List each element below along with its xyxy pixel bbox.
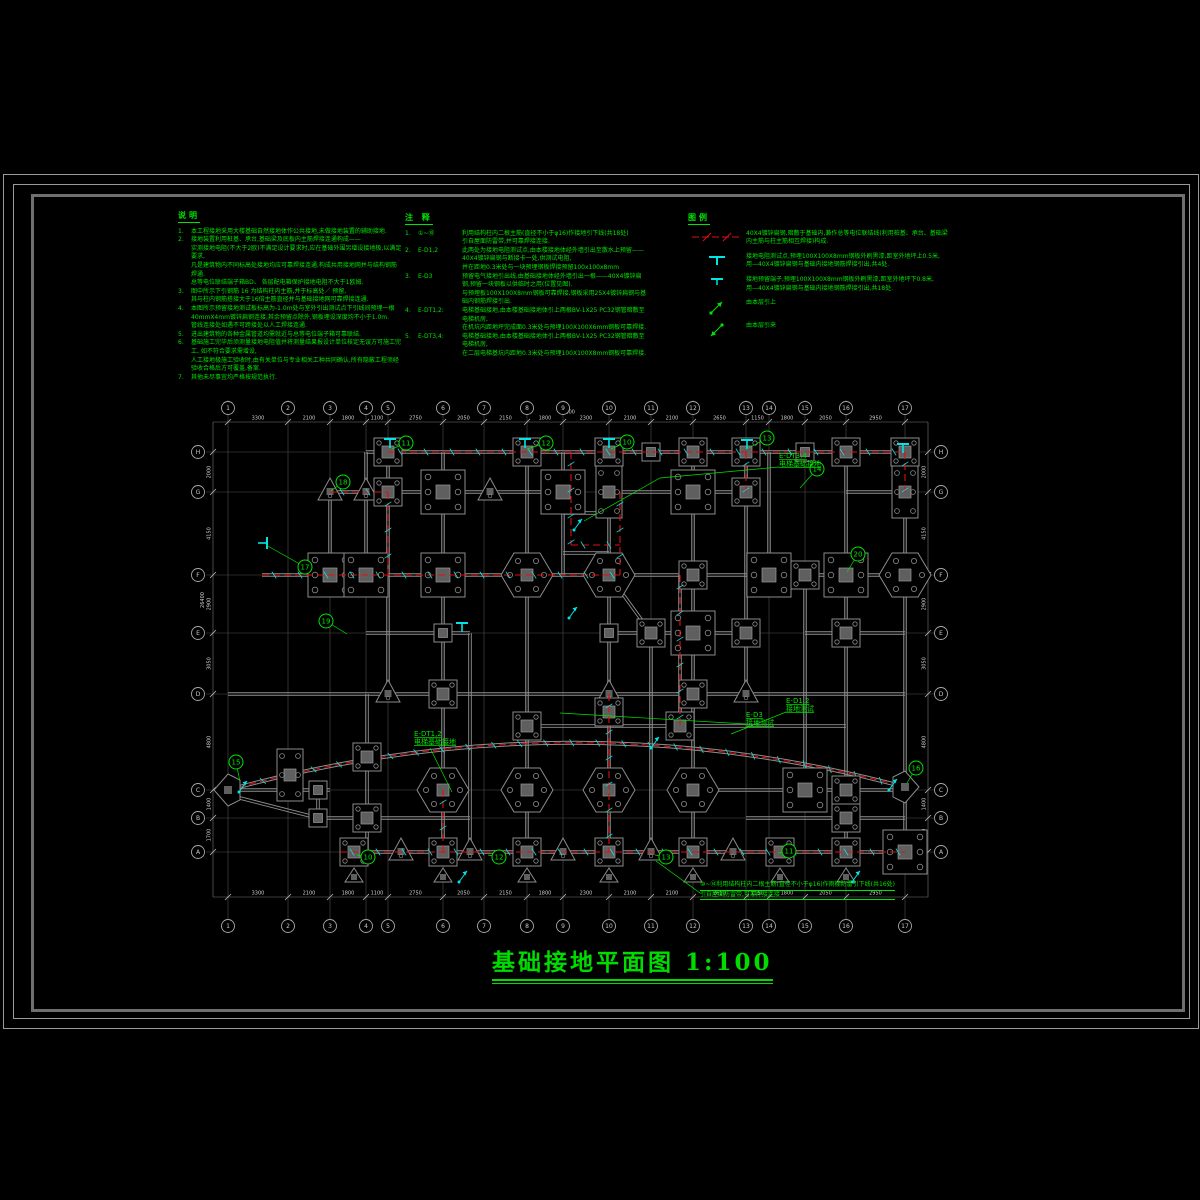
svg-text:15: 15 <box>232 758 241 766</box>
pile-cap <box>783 768 827 812</box>
svg-text:4: 4 <box>364 405 368 412</box>
svg-text:10: 10 <box>364 853 373 861</box>
svg-text:F: F <box>196 572 200 579</box>
svg-text:11: 11 <box>647 405 655 412</box>
pile-cap <box>879 553 931 597</box>
test-point-mark <box>456 623 468 632</box>
pile-cap <box>421 470 465 514</box>
test-point-symbol <box>691 254 743 266</box>
axis-bubble: 3 <box>324 402 337 415</box>
axis-bubble: 6 <box>437 920 450 933</box>
pile-cap <box>513 712 541 740</box>
pile-cap <box>637 619 665 647</box>
svg-text:B: B <box>939 815 943 822</box>
svg-text:B: B <box>196 815 200 822</box>
title-scale: 1:100 <box>685 949 773 976</box>
axis-bubble: 12 <box>687 920 700 933</box>
svg-text:2300: 2300 <box>580 891 593 897</box>
svg-text:C: C <box>939 787 943 794</box>
pile-cap <box>734 680 758 702</box>
test-point-icon <box>688 254 746 266</box>
drawing-title: 基础接地平面图 1:100 <box>492 943 773 984</box>
axis-bubble: G <box>192 486 205 499</box>
note-item: 3.图中所示下引钢筋 16 为结构柱内主筋,并于标高处／ 预留,其与柱内钢筋搭接… <box>178 288 402 305</box>
svg-text:2050: 2050 <box>457 416 470 422</box>
svg-text:1: 1 <box>226 923 230 930</box>
legend-row: 40X4镀锌扁钢,暗敷于基础内,兼作总等电位联结线(利用桩基、承台、基础梁内主筋… <box>688 230 952 247</box>
pile-cap <box>353 743 381 771</box>
item-text: 利用结构柱内二根主筋(直径不小于φ16)作接地引下线(共18处)引自屋面防雷带,… <box>462 230 647 247</box>
svg-text:1800: 1800 <box>342 416 355 422</box>
svg-text:E: E <box>939 630 943 637</box>
note-item: 7.其他未尽事宜均严格按规范执行. <box>178 374 402 383</box>
downlead-callout: 18 <box>331 475 350 491</box>
svg-text:2100: 2100 <box>624 891 637 897</box>
item-number: 3. <box>178 288 191 297</box>
canopy-downlead-note: ⑩~⑭利用结构柱内二根主筋(直径不小于φ16)作雨棚防雷引下线(共16处)引自屋… <box>700 881 895 900</box>
svg-text:电梯基础接地: 电梯基础接地 <box>414 737 456 746</box>
axis-bubble: 11 <box>645 402 658 415</box>
item-number: 7. <box>178 374 191 383</box>
item-number: 5. <box>405 333 418 342</box>
ground-label: E-D1,2接地测试 <box>731 697 814 734</box>
riser-arrow <box>458 871 468 884</box>
riser-up-symbol <box>691 300 743 316</box>
axis-bubble: 7 <box>478 920 491 933</box>
test-point-mark <box>258 537 267 549</box>
pile-cap <box>667 768 719 812</box>
svg-text:D: D <box>939 691 944 698</box>
svg-text:17: 17 <box>901 923 909 930</box>
pile-cap <box>429 680 457 708</box>
svg-text:2100: 2100 <box>666 416 679 422</box>
svg-text:1: 1 <box>226 405 230 412</box>
svg-text:8: 8 <box>525 405 529 412</box>
svg-text:10: 10 <box>605 405 613 412</box>
legend-row: 由本层引来 <box>688 322 952 339</box>
svg-text:2150: 2150 <box>499 416 512 422</box>
item-text: 预留电气接地引出线,由基础接地体经外墙引出一根——40X4镀锌扁钢,预留一块钢板… <box>462 273 647 307</box>
pile-cap <box>600 624 618 642</box>
svg-text:2300: 2300 <box>580 416 593 422</box>
legend-text: 接地电阻测试点,预埋100X100X8mm钢板外刷黑漆,距室外地坪上0.5米,用… <box>746 253 952 270</box>
axis-bubble: 12 <box>687 402 700 415</box>
pile-cap <box>791 561 819 589</box>
pile-cap <box>551 838 575 860</box>
pile-cap <box>595 838 623 882</box>
svg-text:2100: 2100 <box>303 891 316 897</box>
axis-bubble: E <box>192 627 205 640</box>
svg-text:26400: 26400 <box>200 592 206 608</box>
svg-text:G: G <box>196 489 201 496</box>
axis-bubble: B <box>935 812 948 825</box>
svg-text:16: 16 <box>842 923 850 930</box>
svg-text:E-D1,2: E-D1,2 <box>786 697 809 705</box>
notes-title: 说明 <box>178 212 200 223</box>
arc-end-cap <box>893 771 919 803</box>
svg-text:10: 10 <box>623 438 632 446</box>
svg-text:16: 16 <box>842 405 850 412</box>
arc-end-cap <box>214 774 240 806</box>
svg-text:19: 19 <box>322 617 331 625</box>
svg-text:电梯基础接地: 电梯基础接地 <box>779 459 821 468</box>
legend-text: 40X4镀锌扁钢,暗敷于基础内,兼作总等电位联结线(利用桩基、承台、基础梁内主筋… <box>746 230 952 247</box>
item-number: 2. <box>178 236 191 245</box>
riser-up-icon <box>688 300 746 316</box>
cad-sheet: 3300210018001100275020502150180023002100… <box>0 0 1200 1200</box>
axis-bubble: 9 <box>557 402 570 415</box>
item-number: 2. <box>405 247 418 256</box>
pile-cap <box>679 838 707 882</box>
svg-text:9: 9 <box>561 405 565 412</box>
axis-bubble: 10 <box>603 402 616 415</box>
annotation-item: 2.E-D1,2此两处为接地电阻测试点,由本楼接地体经外墙引出至散水上预留——4… <box>405 247 647 273</box>
svg-text:E: E <box>196 630 200 637</box>
item-number: 4. <box>178 305 191 314</box>
axis-bubble: 1 <box>222 402 235 415</box>
svg-text:4800: 4800 <box>207 736 213 749</box>
pile-cap <box>429 838 457 882</box>
pile-cap <box>596 466 622 518</box>
foundation-plan-drawing: 3300210018001100275020502150180023002100… <box>0 0 1200 1200</box>
pile-cap <box>434 624 452 642</box>
reserve-point-icon <box>688 277 746 287</box>
legend-block: 图例 40X4镀锌扁钢,暗敷于基础内,兼作总等电位联结线(利用桩基、承台、基础梁… <box>688 214 952 345</box>
svg-text:9: 9 <box>561 923 565 930</box>
svg-text:F: F <box>939 572 943 579</box>
svg-text:4150: 4150 <box>922 527 928 540</box>
title-text: 基础接地平面图 <box>492 949 674 976</box>
legend-row: 由本层引上 <box>688 299 952 316</box>
pile-cap <box>832 776 860 804</box>
svg-text:2050: 2050 <box>457 891 470 897</box>
axis-bubble: E <box>935 627 948 640</box>
item-number: 3. <box>405 273 418 282</box>
pile-cap <box>832 619 860 647</box>
svg-text:20: 20 <box>854 550 863 558</box>
axis-bubble: 13 <box>740 920 753 933</box>
svg-text:2900: 2900 <box>207 598 213 611</box>
item-text: 其他未尽事宜均严格按规范执行. <box>191 374 402 383</box>
axis-bubble: 5 <box>382 402 395 415</box>
svg-text:14: 14 <box>765 405 773 412</box>
item-text: 图中所示下引钢筋 16 为结构柱内主筋,并于标高处／ 预留,其与柱内钢筋搭接大于… <box>191 288 402 305</box>
pile-cap <box>671 611 715 655</box>
svg-text:D: D <box>196 691 201 698</box>
svg-text:E-D3: E-D3 <box>746 711 763 719</box>
title-underline <box>492 979 773 981</box>
downlead-callout: 19 <box>319 614 347 634</box>
downlead-callout: 17 <box>266 545 312 574</box>
svg-text:2150: 2150 <box>499 891 512 897</box>
axis-bubble: B <box>192 812 205 825</box>
axis-bubble: D <box>935 688 948 701</box>
ground-line-symbol <box>691 231 743 243</box>
svg-text:2650: 2650 <box>713 416 726 422</box>
axis-bubble: 1 <box>222 920 235 933</box>
axis-bubble: 17 <box>899 920 912 933</box>
svg-text:2900: 2900 <box>922 598 928 611</box>
item-text: 接地装置利用桩基、承台,基础梁及底板内主筋焊接连通构成——实测接地电阻(不大于2… <box>191 236 402 288</box>
svg-text:3: 3 <box>328 923 332 930</box>
item-text: 电梯基础接地,由本楼基础接地体引上两根BV-1X25 PC32钢管暗敷至电梯机房… <box>462 307 647 333</box>
svg-text:1100: 1100 <box>371 416 384 422</box>
legend-text: 由本层引上 <box>746 299 952 308</box>
svg-text:11: 11 <box>647 923 655 930</box>
svg-text:6: 6 <box>441 405 445 412</box>
riser-arrow <box>573 519 583 532</box>
svg-text:2100: 2100 <box>666 891 679 897</box>
axis-bubble: 17 <box>899 402 912 415</box>
axis-bubble: 8 <box>521 402 534 415</box>
svg-text:4: 4 <box>364 923 368 930</box>
pile-cap <box>832 838 860 882</box>
svg-text:12: 12 <box>689 923 697 930</box>
notes-block: 说明 1.本工程接地采用大楼基础自然接地体作公共接地,未做接地装置的辅助接地.2… <box>178 212 402 382</box>
svg-text:H: H <box>939 449 944 456</box>
axis-bubble: C <box>935 784 948 797</box>
pile-cap <box>376 680 400 702</box>
annotations-title: 注 释 <box>405 214 433 225</box>
svg-text:11: 11 <box>402 439 411 447</box>
axis-bubble: 16 <box>840 920 853 933</box>
svg-text:1800: 1800 <box>539 416 552 422</box>
svg-text:13: 13 <box>742 405 750 412</box>
axis-bubble: 8 <box>521 920 534 933</box>
svg-text:E-DT3,4: E-DT3,4 <box>779 452 807 460</box>
riser-in-icon <box>688 323 746 339</box>
axis-bubble: 13 <box>740 402 753 415</box>
annotation-item: 5.E-DT3,4:电梯基础接地,由本楼基础接地体引上两根BV-1X25 PC3… <box>405 333 647 359</box>
item-text: 此两处为接地电阻测试点,由本楼接地体经外墙引出至散水上预留——40X4镀锌扁钢与… <box>462 247 647 273</box>
pile-cap <box>832 804 860 832</box>
item-code: ①~⑱ <box>418 230 462 239</box>
annotation-items: 1.①~⑱利用结构柱内二根主筋(直径不小于φ16)作接地引下线(共18处)引自屋… <box>405 230 647 359</box>
pile-cap <box>478 478 502 500</box>
pile-cap <box>541 470 585 514</box>
svg-text:17: 17 <box>901 405 909 412</box>
svg-text:2: 2 <box>286 405 290 412</box>
axis-bubble: 9 <box>557 920 570 933</box>
svg-text:2750: 2750 <box>409 891 422 897</box>
annotation-item: 3.E-D3预留电气接地引出线,由基础接地体经外墙引出一根——40X4镀锌扁钢,… <box>405 273 647 307</box>
axis-bubble: 14 <box>763 920 776 933</box>
pile-cap <box>513 838 541 882</box>
axis-bubble: F <box>935 569 948 582</box>
legend-text: 由本层引来 <box>746 322 952 331</box>
svg-text:1800: 1800 <box>781 416 794 422</box>
legend-text: 接地预留端子,预埋100X100X8mm钢板外刷黑漆,距室外地坪下0.8米,用—… <box>746 276 952 293</box>
svg-text:17: 17 <box>301 563 310 571</box>
annotation-item: 4.E-DT1,2:电梯基础接地,由本楼基础接地体引上两根BV-1X25 PC3… <box>405 307 647 333</box>
svg-text:3: 3 <box>328 405 332 412</box>
item-code: E-DT3,4: <box>418 333 462 342</box>
svg-text:13: 13 <box>763 434 772 442</box>
svg-text:14: 14 <box>765 923 773 930</box>
pile-cap <box>353 804 381 832</box>
note-item: 1.本工程接地采用大楼基础自然接地体作公共接地,未做接地装置的辅助接地. <box>178 228 402 237</box>
svg-text:2000: 2000 <box>207 466 213 479</box>
pile-cap <box>747 553 791 597</box>
axis-bubble: 16 <box>840 402 853 415</box>
svg-text:3300: 3300 <box>252 891 265 897</box>
svg-text:H: H <box>196 449 201 456</box>
svg-text:4800: 4800 <box>922 736 928 749</box>
svg-text:1700: 1700 <box>207 829 213 842</box>
axis-bubble: 14 <box>763 402 776 415</box>
svg-text:2000: 2000 <box>922 466 928 479</box>
item-code: E-D1,2 <box>418 247 462 256</box>
pile-cap <box>458 838 482 860</box>
svg-text:接地测试: 接地测试 <box>746 718 774 727</box>
item-number: 5. <box>178 331 191 340</box>
axis-bubble: F <box>192 569 205 582</box>
pile-cap <box>732 619 760 647</box>
axis-bubble: 11 <box>645 920 658 933</box>
legend-title: 图例 <box>688 214 710 225</box>
axis-bubble: H <box>935 446 948 459</box>
item-code: E-D3 <box>418 273 462 282</box>
svg-text:3300: 3300 <box>252 416 265 422</box>
svg-text:1800: 1800 <box>342 891 355 897</box>
svg-text:4150: 4150 <box>207 527 213 540</box>
note-item: 6.基础施工完毕后须测量接地电阻值并将测量结果报设计单位核定无误方可施工完工, … <box>178 339 402 373</box>
item-code: E-DT1,2: <box>418 307 462 316</box>
svg-text:2050: 2050 <box>819 416 832 422</box>
svg-text:5: 5 <box>386 405 390 412</box>
pile-cap <box>679 680 707 708</box>
svg-text:1400: 1400 <box>207 798 213 811</box>
ground-line-icon <box>688 231 746 243</box>
annotation-item: 1.①~⑱利用结构柱内二根主筋(直径不小于φ16)作接地引下线(共18处)引自屋… <box>405 230 647 247</box>
axis-bubble: 6 <box>437 402 450 415</box>
note-item: 2.接地装置利用桩基、承台,基础梁及底板内主筋焊接连通构成——实测接地电阻(不大… <box>178 236 402 288</box>
svg-text:18: 18 <box>339 478 348 486</box>
plan-columns <box>214 438 931 882</box>
axis-bubble: 5 <box>382 920 395 933</box>
item-number: 4. <box>405 307 418 316</box>
svg-text:5: 5 <box>386 923 390 930</box>
svg-text:1150: 1150 <box>751 416 764 422</box>
note-item: 4.本图所示预留接地测试板标高为-1.0m处与室外引出测试点下引线间预埋一根40… <box>178 305 402 331</box>
axis-bubble: C <box>192 784 205 797</box>
axis-bubble: 10 <box>603 920 616 933</box>
legend-row: 接地电阻测试点,预埋100X100X8mm钢板外刷黑漆,距室外地坪上0.5米,用… <box>688 253 952 270</box>
item-number: 1. <box>405 230 418 239</box>
axis-bubble: 4 <box>360 920 373 933</box>
pile-cap <box>277 749 303 801</box>
svg-text:13: 13 <box>662 853 671 861</box>
svg-text:15: 15 <box>801 923 809 930</box>
riser-in-symbol <box>691 323 743 339</box>
svg-text:12: 12 <box>689 405 697 412</box>
svg-text:1800: 1800 <box>539 891 552 897</box>
item-text: 电梯基础接地,由本楼基础接地体引上两根BV-1X25 PC32钢管暗敷至电梯机房… <box>462 333 647 359</box>
axis-bubble: 15 <box>799 920 812 933</box>
svg-text:11: 11 <box>785 847 794 855</box>
item-text: 本图所示预留接地测试板标高为-1.0m处与室外引出测试点下引线间预埋一根40mm… <box>191 305 402 331</box>
annotations-block: 注 释 1.①~⑱利用结构柱内二根主筋(直径不小于φ16)作接地引下线(共18处… <box>405 214 647 359</box>
axis-bubble: A <box>935 846 948 859</box>
item-number: 1. <box>178 228 191 237</box>
svg-text:E-DT1,2: E-DT1,2 <box>414 730 442 738</box>
pile-cap <box>389 838 413 860</box>
svg-text:G: G <box>939 489 944 496</box>
axis-bubble: A <box>192 846 205 859</box>
svg-text:7: 7 <box>482 405 486 412</box>
legend-row: 接地预留端子,预埋100X100X8mm钢板外刷黑漆,距室外地坪下0.8米,用—… <box>688 276 952 293</box>
axis-bubble: 2 <box>282 920 295 933</box>
svg-text:C: C <box>196 787 200 794</box>
axis-bubble: 7 <box>478 402 491 415</box>
svg-text:2100: 2100 <box>303 416 316 422</box>
pile-cap <box>309 781 327 799</box>
svg-text:3050: 3050 <box>922 657 928 670</box>
svg-text:1100: 1100 <box>371 891 384 897</box>
item-number: 6. <box>178 339 191 348</box>
svg-text:16: 16 <box>912 764 921 772</box>
axis-bubble: G <box>935 486 948 499</box>
reserve-point-symbol <box>691 277 743 287</box>
item-text: 基础施工完毕后须测量接地电阻值并将测量结果报设计单位核定无误方可施工完工, 如不… <box>191 339 402 373</box>
svg-text:7: 7 <box>482 923 486 930</box>
axis-bubble: 2 <box>282 402 295 415</box>
svg-text:2100: 2100 <box>624 416 637 422</box>
axis-bubble: 3 <box>324 920 337 933</box>
axis-bubble: 4 <box>360 402 373 415</box>
svg-text:12: 12 <box>495 853 504 861</box>
riser-arrow <box>568 607 578 620</box>
item-text: 本工程接地采用大楼基础自然接地体作公共接地,未做接地装置的辅助接地. <box>191 228 402 237</box>
svg-text:8: 8 <box>525 923 529 930</box>
svg-text:10: 10 <box>605 923 613 930</box>
notes-items: 1.本工程接地采用大楼基础自然接地体作公共接地,未做接地装置的辅助接地.2.接地… <box>178 228 402 383</box>
legend-rows: 40X4镀锌扁钢,暗敷于基础内,兼作总等电位联结线(利用桩基、承台、基础梁内主筋… <box>688 230 952 340</box>
axis-bubble: H <box>192 446 205 459</box>
svg-text:接地测试: 接地测试 <box>786 704 814 713</box>
pile-cap <box>721 838 745 860</box>
svg-text:13: 13 <box>742 923 750 930</box>
svg-text:2: 2 <box>286 923 290 930</box>
axis-bubble: 15 <box>799 402 812 415</box>
svg-text:2750: 2750 <box>409 416 422 422</box>
svg-text:15: 15 <box>801 405 809 412</box>
pile-cap <box>501 768 553 812</box>
svg-text:2950: 2950 <box>869 416 882 422</box>
svg-text:1400: 1400 <box>922 798 928 811</box>
pile-cap <box>309 809 327 827</box>
svg-text:3050: 3050 <box>207 657 213 670</box>
title-underline-2 <box>492 983 773 984</box>
svg-text:12: 12 <box>542 439 551 447</box>
axis-bubble: D <box>192 688 205 701</box>
svg-text:6: 6 <box>441 923 445 930</box>
